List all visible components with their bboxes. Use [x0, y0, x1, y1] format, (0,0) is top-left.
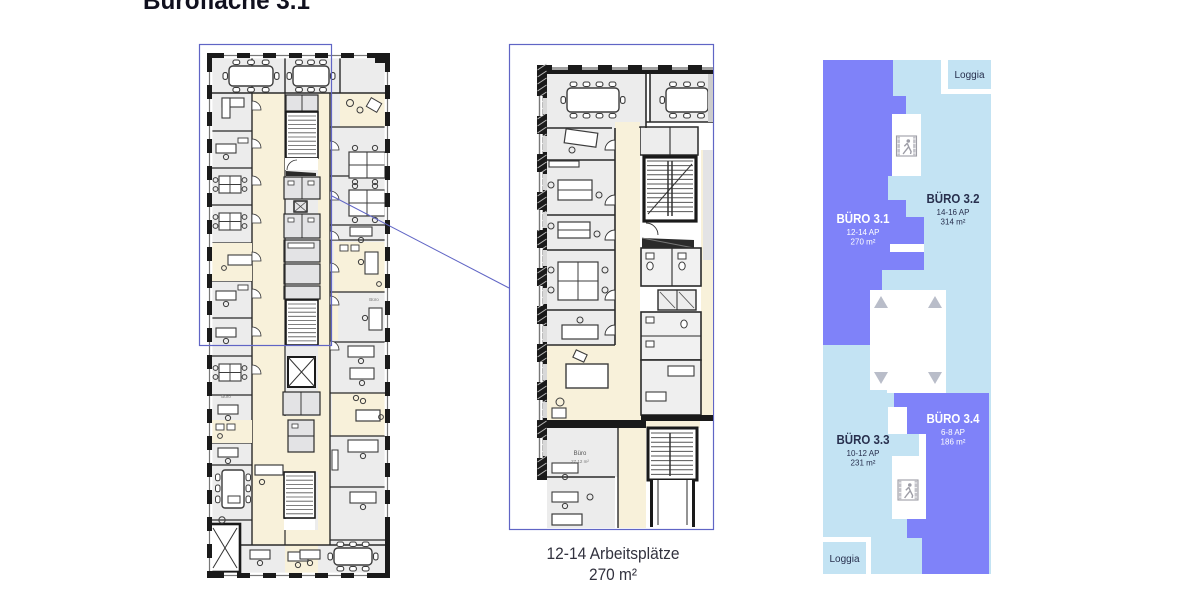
svg-text:14-16 AP: 14-16 AP	[937, 208, 970, 217]
svg-text:186 m²: 186 m²	[941, 438, 966, 447]
svg-text:12-14 Arbeitsplätze: 12-14 Arbeitsplätze	[547, 545, 680, 563]
svg-text:231 m²: 231 m²	[851, 459, 876, 468]
svg-text:Loggia: Loggia	[954, 70, 984, 81]
svg-text:6-8 AP: 6-8 AP	[941, 428, 965, 437]
svg-text:BÜRO 3.1: BÜRO 3.1	[837, 211, 890, 226]
svg-text:12-14 AP: 12-14 AP	[847, 228, 880, 237]
svg-text:270 m²: 270 m²	[589, 566, 637, 584]
svg-text:Loggia: Loggia	[829, 554, 859, 565]
svg-text:Büro: Büro	[369, 297, 379, 302]
svg-text:314 m²: 314 m²	[941, 218, 966, 227]
svg-text:10-12 AP: 10-12 AP	[847, 449, 880, 458]
svg-text:270 m²: 270 m²	[851, 238, 876, 247]
svg-text:BÜRO 3.3: BÜRO 3.3	[837, 432, 890, 447]
svg-text:Büro: Büro	[221, 394, 231, 399]
svg-text:BÜRO 3.4: BÜRO 3.4	[927, 411, 980, 426]
svg-text:BÜRO 3.2: BÜRO 3.2	[927, 191, 980, 206]
svg-text:Büro: Büro	[574, 451, 587, 457]
svg-text:Bürofläche 3.1: Bürofläche 3.1	[143, 0, 310, 15]
